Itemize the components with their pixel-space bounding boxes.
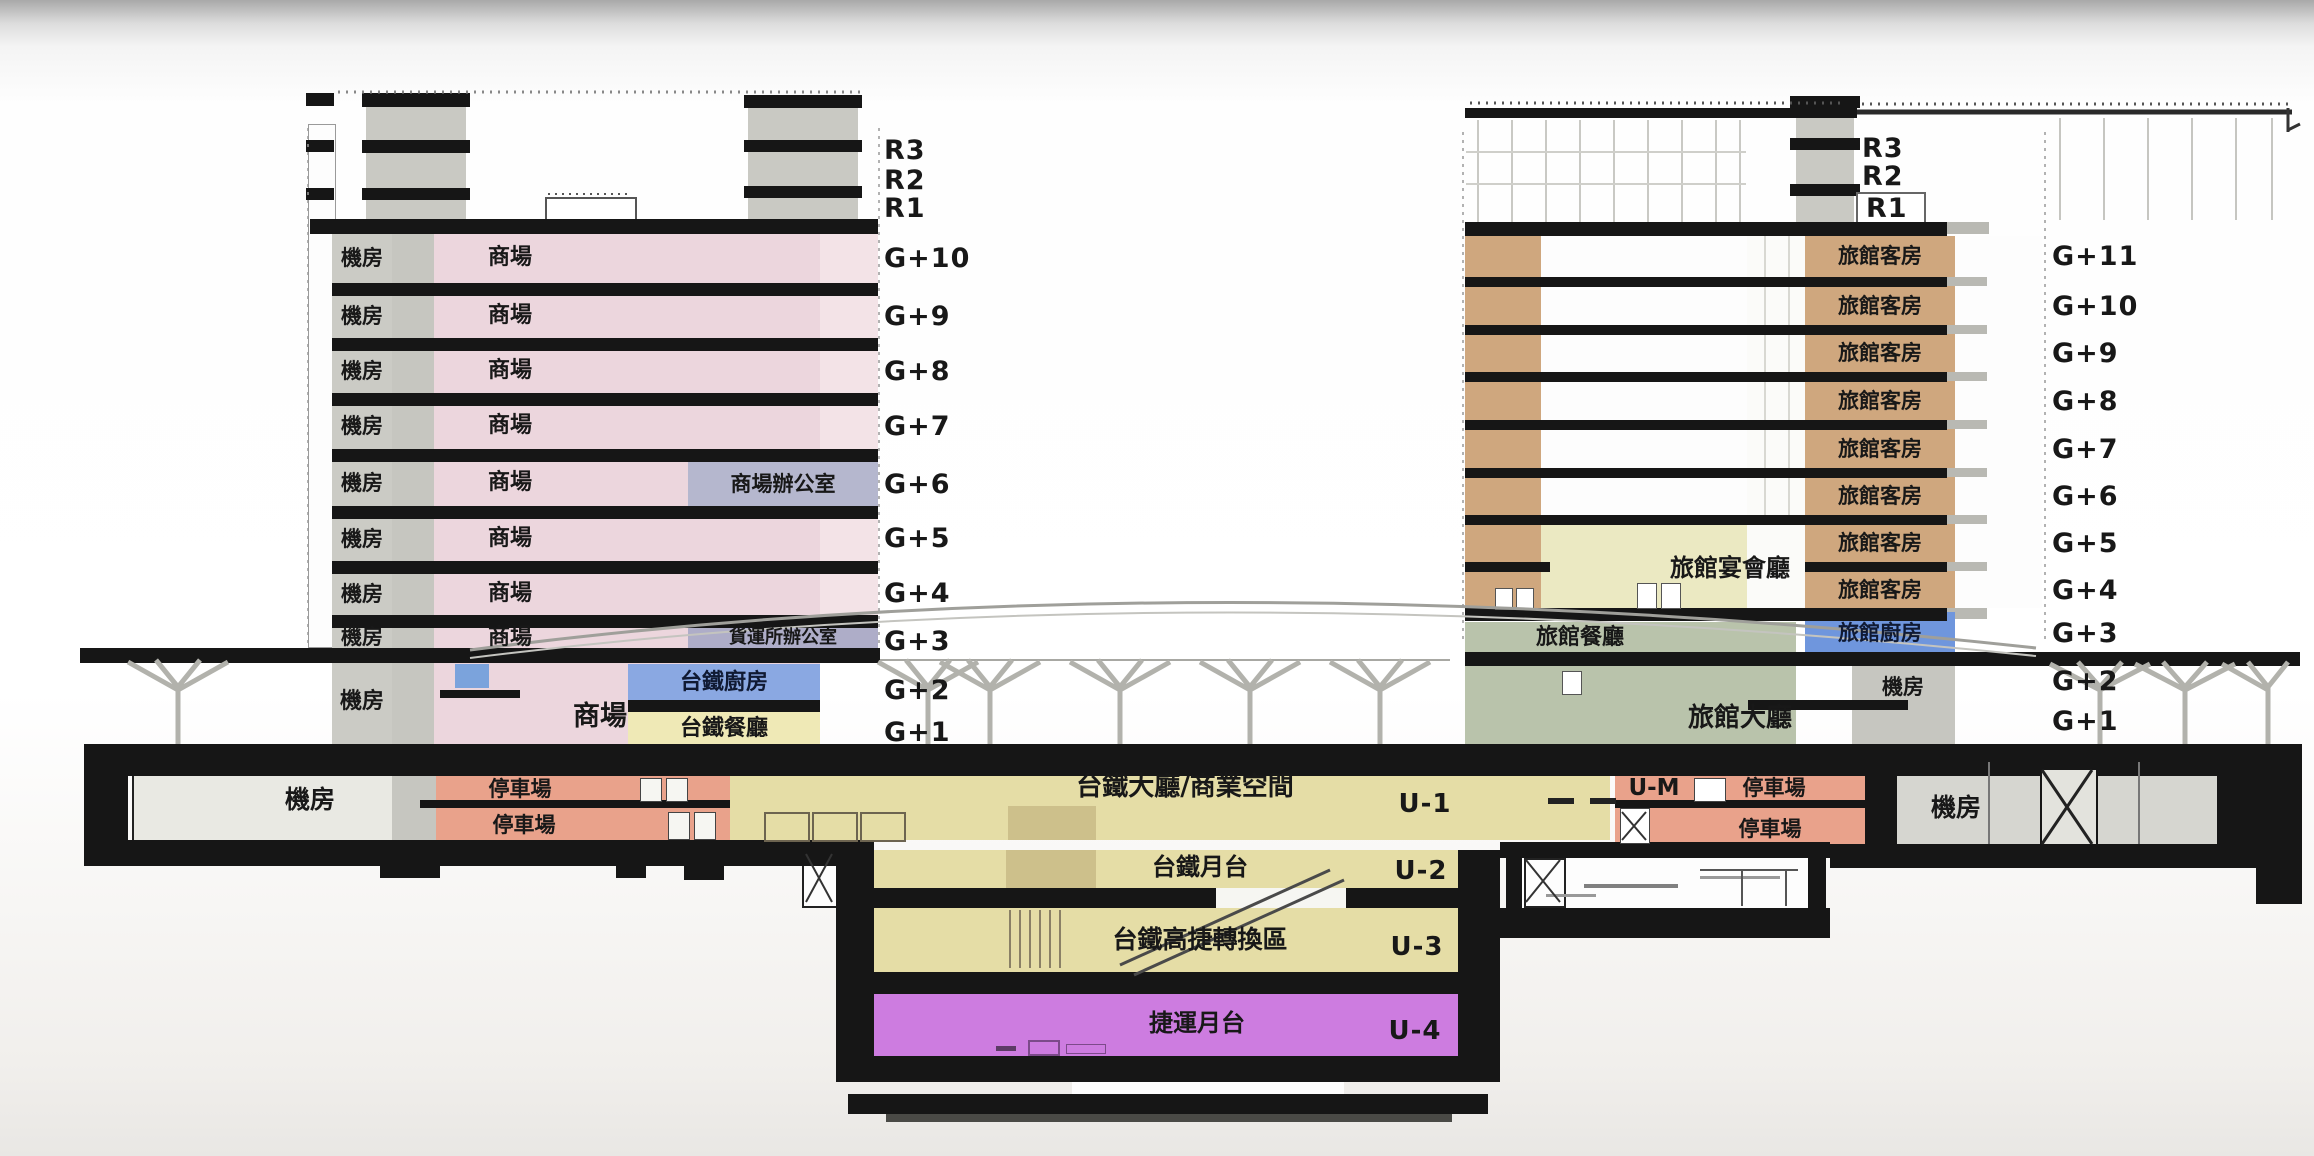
escalator-hatch (1008, 806, 1096, 840)
kiosk-frame (764, 812, 810, 842)
roof-band (362, 188, 470, 200)
roof-slab (310, 219, 878, 234)
roof-level-label-right: R1 (1866, 194, 1936, 223)
floor-slab (1465, 468, 1947, 478)
mall-label: 商場 (460, 304, 560, 328)
annotation-smudge (1700, 876, 1780, 879)
x-brace-box (1620, 808, 1650, 844)
mall-label: 商場 (460, 246, 560, 270)
floor-level-label-left: G+10 (884, 244, 1004, 273)
roof-band (1790, 96, 1860, 108)
floor-level-label-left: R3 (884, 136, 1004, 165)
parking-label: 停車場 (466, 814, 582, 837)
roof-slab (1465, 222, 1947, 236)
balcony-stub (1947, 325, 1987, 334)
u4-name-label: 捷運月台 (1122, 1011, 1272, 1037)
floor-slab (1465, 420, 1947, 430)
guest-room-label: 旅館客房 (1815, 579, 1945, 602)
floor-level-label-right: G+3 (2052, 619, 2182, 648)
floor-level-label-right: G+11 (2052, 242, 2182, 271)
door-frame (1562, 671, 1582, 695)
footing (616, 866, 646, 878)
floor-slab (332, 506, 878, 519)
stair-gap (1216, 888, 1346, 908)
machine-room-label: 機房 (334, 583, 390, 606)
floor-level-label-right: G+10 (2052, 292, 2182, 321)
parking-slab (1615, 800, 1867, 808)
machine-room-label: 機房 (334, 415, 390, 438)
mall-label: 商場 (460, 527, 560, 551)
machine-room-label: 機房 (334, 305, 390, 328)
balcony-stub (1947, 468, 1987, 477)
footing (380, 866, 440, 878)
core-extension (392, 776, 436, 840)
floor-slab (1465, 277, 1947, 287)
machine-room-label: 機房 (330, 690, 394, 714)
kiosk-frame (812, 812, 858, 842)
balcony-stub (1947, 515, 1987, 524)
tra-kitchen-label: 台鐵廚房 (628, 671, 820, 695)
floor-slab (332, 393, 878, 406)
hotel-restaurant-label: 旅館餐廳 (1510, 626, 1650, 650)
floor-slab (1465, 608, 1947, 621)
floor-level-label-left: G+2 (884, 676, 1004, 705)
mall-label: 商場 (460, 582, 560, 606)
track-gap (1072, 1082, 1344, 1094)
u1-code-label: U-1 (1390, 790, 1460, 818)
machine-room-label: 機房 (334, 472, 390, 495)
door-frame (1637, 583, 1657, 609)
x-brace-box (1524, 858, 1566, 908)
parking-label: 停車場 (462, 778, 578, 801)
door-frame (1516, 588, 1534, 610)
floor-level-label-left: R1 (884, 194, 1004, 223)
floor-level-label-right: G+9 (2052, 339, 2182, 368)
machine-room-label: 機房 (334, 626, 390, 649)
footing-slab (848, 1094, 1488, 1114)
floor-slab (628, 700, 820, 712)
tick-mark (1590, 798, 1616, 804)
u1-name-label: 台鐵大廳/商業空間 (1030, 773, 1340, 801)
hatch-square (1694, 778, 1726, 802)
tra-restaurant-label: 台鐵餐廳 (628, 717, 820, 741)
machine-room-label: 機房 (250, 786, 370, 813)
floor-level-label-left: G+1 (884, 718, 1004, 747)
cross-section-canvas: R3 R2 R1 G+10 G+9 G+8 G+7 G+6 G+5 G+4 G+… (0, 0, 2314, 1156)
right-roof-top-band (1465, 108, 1857, 118)
door-frame (694, 812, 716, 840)
machine-room-label: 機房 (334, 247, 390, 270)
guest-room-label: 旅館客房 (1815, 245, 1945, 268)
mall-label: 商場 (460, 626, 560, 650)
floor-level-label-right: G+6 (2052, 482, 2182, 511)
floor-slab (1465, 372, 1947, 382)
deck-band-right (1465, 652, 2300, 666)
roof-band (744, 186, 862, 198)
x-brace-column (2040, 768, 2098, 850)
small-blue-box (455, 664, 489, 688)
roof-level-label-right: R2 (1862, 162, 1932, 191)
floor-slab (1465, 562, 1550, 572)
left-core-top (366, 93, 466, 221)
um-code-label: U-M (1624, 776, 1684, 801)
banquet-hall-label: 旅館宴會廳 (1620, 556, 1840, 582)
floor-level-label-right: G+2 (2052, 667, 2182, 696)
roof-band (744, 140, 862, 152)
annotation-smudge (1546, 894, 1596, 897)
u3-code-label: U-3 (1385, 933, 1449, 961)
floor-level-label-right: G+7 (2052, 435, 2182, 464)
roof-band (306, 140, 334, 152)
roof-band (744, 95, 862, 108)
hotel-lobby-label: 旅館大廳 (1660, 704, 1820, 732)
u4-code-label: U-4 (1383, 1017, 1447, 1045)
machine-room-label: 機房 (334, 360, 390, 383)
guest-room-label: 旅館客房 (1815, 532, 1945, 555)
kiosk-frame (860, 812, 906, 842)
deep-right-wall (1458, 850, 1500, 1082)
door-frame (1661, 583, 1681, 609)
floor-level-label-left: G+6 (884, 470, 1004, 499)
floor-slab (440, 690, 520, 698)
hotel-machine-label: 機房 (1868, 676, 1938, 699)
floor-slab (332, 449, 878, 462)
floor-level-label-left: G+3 (884, 627, 1004, 656)
door-frame (640, 778, 662, 802)
floor-level-label-left: G+9 (884, 302, 1004, 331)
platform-mark (1028, 1040, 1060, 1056)
guest-room-label: 旅館客房 (1815, 295, 1945, 318)
wall-line (2138, 762, 2140, 848)
floor-slab (332, 561, 878, 574)
floor-level-label-left: R2 (884, 166, 1004, 195)
floor-slab (1465, 325, 1947, 335)
deep-left-wall (836, 840, 874, 1082)
floor-level-label-right: G+4 (2052, 576, 2182, 605)
machine-room-label: 機房 (334, 528, 390, 551)
floor-level-label-left: G+4 (884, 579, 1004, 608)
basement-divider (1865, 744, 1895, 850)
tick-mark (1548, 798, 1574, 804)
guest-room-label: 旅館客房 (1815, 485, 1945, 508)
mall-label: 商場 (460, 471, 560, 495)
parking-label: 停車場 (1726, 777, 1822, 800)
balcony-stub (1947, 562, 1987, 571)
left-rooftop-block (748, 95, 858, 221)
platform-mark (996, 1046, 1016, 1051)
door-frame (668, 812, 690, 840)
basement-right-notch (2256, 744, 2302, 904)
floor-slab (332, 283, 878, 296)
roof-band (1790, 138, 1860, 150)
roof-band (1790, 184, 1860, 196)
door-frame (666, 778, 688, 802)
footing (684, 866, 724, 880)
guest-room-label: 旅館客房 (1815, 390, 1945, 413)
floor-level-label-right: G+1 (2052, 707, 2182, 736)
room-slab (1500, 842, 1830, 858)
annotation-smudge (1584, 884, 1678, 888)
floor-level-label-left: G+8 (884, 357, 1004, 386)
mall-label: 商場 (460, 359, 560, 383)
room-floor (1500, 908, 1830, 938)
mall-facade (820, 234, 878, 648)
guest-room-label: 旅館客房 (1815, 438, 1945, 461)
u3-name-label: 台鐵高捷轉換區 (1072, 926, 1328, 953)
u2-slab (874, 888, 1216, 908)
floor-level-label-left: G+5 (884, 524, 1004, 553)
roof-level-label-right: R3 (1862, 134, 1932, 163)
balcony-stub (1947, 420, 1987, 429)
basement-bottom-slab (84, 840, 838, 866)
u3-slab (836, 972, 1500, 994)
hotel-kitchen-label: 旅館廚房 (1815, 622, 1945, 645)
roof-band (306, 188, 334, 200)
floor-level-label-left: G+7 (884, 412, 1004, 441)
basement-bottom-slab-right (1830, 844, 2302, 868)
freight-office-label: 貨運所辦公室 (688, 628, 878, 647)
floor-slab (332, 338, 878, 351)
guest-room-label: 旅館客房 (1815, 342, 1945, 365)
parking-label: 停車場 (1722, 818, 1818, 841)
roof-band (306, 93, 334, 106)
balcony-stub (1947, 222, 1989, 234)
door-frame (1495, 588, 1513, 610)
deck-band-left (80, 648, 880, 663)
mall-label: 商場 (460, 414, 560, 438)
u2-name-label: 台鐵月台 (1125, 855, 1275, 881)
u4-slab (836, 1056, 1500, 1082)
roof-band (362, 93, 470, 107)
floor-level-label-right: G+8 (2052, 387, 2182, 416)
footing-shadow (886, 1114, 1452, 1122)
mall-office-label: 商場辦公室 (688, 473, 878, 496)
platform-mark (1066, 1044, 1106, 1054)
balcony-stub (1947, 277, 1987, 286)
roof-band (362, 140, 470, 153)
floor-level-label-right: G+5 (2052, 529, 2182, 558)
balcony-stub (1947, 372, 1987, 381)
escalator-hatch (1006, 850, 1096, 888)
u2-code-label: U-2 (1390, 857, 1452, 885)
floor-slab (1465, 515, 1947, 525)
machine-room-label: 機房 (1906, 794, 2006, 821)
